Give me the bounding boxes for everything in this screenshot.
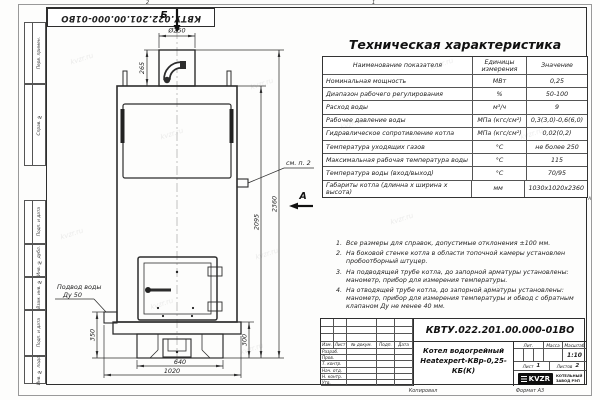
spec-cell-unit: м³/ч	[473, 101, 527, 113]
tb-cell	[321, 327, 334, 335]
tb-doc-number: КВТУ.022.201.00.000-01ВО	[414, 319, 586, 342]
company-name-line1: КОТЕЛЬНЫЙ	[556, 374, 582, 379]
spec-row: Температура уходящих газов °С не более 2…	[323, 140, 587, 153]
tb-sheet-row: Лист 1 Листов 2	[514, 362, 586, 371]
spec-header-row: Наименование показателя Единицы измерени…	[323, 57, 587, 74]
copied-label: Копировал	[393, 388, 453, 394]
tb-cell	[377, 380, 395, 386]
tb-cell	[347, 319, 377, 327]
tb-cell	[395, 319, 413, 327]
spec-cell-unit: °С	[473, 141, 527, 153]
view-b-label: Б	[160, 10, 167, 21]
spec-row: Номинальная мощность МВт 0,25	[323, 74, 587, 87]
spec-cell-name: Диапазон рабочего регулирования	[323, 88, 473, 100]
company-name: КОТЕЛЬНЫЙ ЗАВОД РЭП	[556, 374, 582, 383]
spec-cell-name: Габариты котла (длинна х ширина х высота…	[323, 181, 472, 197]
spec-cell-name: Расход воды	[323, 101, 473, 113]
tb-cell	[395, 327, 413, 335]
tb-scale-value: 1:10	[563, 349, 586, 362]
zone-number-left: 2	[146, 0, 158, 6]
dim-total-height: 2360	[271, 196, 279, 212]
spec-row: Расход воды м³/ч 9	[323, 100, 587, 113]
note-number: 3.	[332, 269, 342, 285]
tb-cell	[524, 349, 534, 362]
tb-product-name-line1: Котел водогрейный	[414, 346, 513, 356]
spec-cell-name: Номинальная мощность	[323, 75, 473, 87]
company-name-line2: ЗАВОД РЭП	[556, 379, 582, 384]
note-text: На подводящей трубе котла, до запорной а…	[346, 269, 584, 285]
spec-row: Гидравлическое сопротивление котла МПа (…	[323, 127, 587, 140]
spec-cell-value: 50-100	[527, 88, 587, 100]
sampling-stub	[237, 179, 248, 187]
spec-row: Температура воды (вход/выход) °С 70/95	[323, 166, 587, 179]
note-text: На отводящей трубе котла, до запорной ар…	[346, 287, 584, 312]
tb-col-podp: Подп.	[377, 342, 395, 349]
dim-base-width: 640	[174, 358, 186, 366]
tb-cell	[544, 349, 563, 362]
logo-text: KVZR	[529, 375, 550, 383]
tb-right-value-row: 1:10	[514, 349, 586, 362]
tb-cell	[514, 349, 524, 362]
tb-cell	[321, 334, 334, 342]
tb-cell	[377, 334, 395, 342]
spec-cell-value: не более 250	[527, 141, 587, 153]
spec-cell-unit: МВт	[473, 75, 527, 87]
tb-sheets-label: Листов	[557, 364, 573, 369]
tb-cell	[334, 319, 347, 327]
kvzr-logo: KVZR	[518, 373, 553, 385]
tb-sheet-value: 1	[536, 363, 540, 369]
tb-scale-label: Масштаб	[563, 342, 586, 349]
door-hinge-bottom	[208, 302, 222, 311]
tb-cell	[347, 380, 377, 386]
tb-logo-row: KVZR КОТЕЛЬНЫЙ ЗАВОД РЭП	[514, 371, 586, 386]
note-number: 4.	[332, 287, 342, 312]
spec-cell-value: 1030х1020х2360	[525, 181, 587, 197]
tb-cell	[334, 327, 347, 335]
dim-chimney-diameter: Ø250	[167, 27, 185, 35]
tb-sheets-cell: Листов 2	[550, 362, 586, 371]
spec-cell-value: 0,3(3,0)-0,6(6,0)	[527, 115, 587, 127]
spec-cell-unit: %	[473, 88, 527, 100]
spec-cell-name: Максимальная рабочая температура воды	[323, 154, 473, 166]
spec-cell-unit: °С	[473, 167, 527, 179]
spec-row: Габариты котла (длинна х ширина х высота…	[323, 180, 587, 197]
tb-lit-label: Лит.	[514, 342, 544, 349]
spec-header-unit: Единицы измерения	[473, 57, 527, 74]
tb-cell	[377, 327, 395, 335]
tb-cell	[347, 327, 377, 335]
see-note-callout: см. п. 2	[286, 159, 311, 167]
zone-number-right: 1	[372, 0, 384, 6]
tb-mass-label: Масса	[544, 342, 563, 349]
notes-list: 1. Все размеры для справок, допустимые о…	[332, 240, 584, 313]
note-item: 2. На боковой стенке котла в области топ…	[332, 250, 584, 266]
title-block: Изм. Лист № докум. Подп. Дата Разраб. Пр…	[320, 318, 585, 385]
tb-cell	[377, 319, 395, 327]
logo-stripes-icon	[521, 375, 527, 382]
spec-cell-unit: °С	[473, 154, 527, 166]
note-item: 3. На подводящей трубе котла, до запорно…	[332, 269, 584, 285]
tb-sheets-value: 2	[575, 363, 579, 369]
tb-cell	[321, 319, 334, 327]
format-label: Формат А3	[500, 388, 560, 394]
spec-table-title: Техническая характеристика	[322, 37, 588, 52]
note-number: 2.	[332, 250, 342, 266]
zone-letter: А	[588, 197, 591, 202]
tb-cell	[395, 334, 413, 342]
tb-col-list: Лист	[334, 342, 347, 349]
spec-cell-value: 70/95	[527, 167, 587, 179]
tb-col-izm: Изм.	[321, 342, 334, 349]
spec-cell-name: Температура воды (вход/выход)	[323, 167, 473, 179]
water-inlet-label-1: Подвод воды	[57, 283, 101, 291]
dim-left-height: 350	[89, 329, 97, 341]
tb-cell	[347, 334, 377, 342]
spec-cell-value: 115	[527, 154, 587, 166]
tb-cell	[395, 380, 413, 386]
note-item: 4. На отводящей трубе котла, до запорной…	[332, 287, 584, 312]
tb-sheet-label: Лист	[523, 364, 534, 369]
title-block-left-grid: Изм. Лист № докум. Подп. Дата Разраб. Пр…	[321, 319, 414, 386]
tb-col-docnum: № докум.	[347, 342, 377, 349]
tb-row-utv: Утв.	[321, 380, 347, 386]
spec-cell-unit: МПа (кгс/см²)	[473, 115, 527, 127]
dim-total-width: 1020	[164, 367, 180, 375]
tb-sheet-cell: Лист 1	[514, 362, 550, 371]
note-item: 1. Все размеры для справок, допустимые о…	[332, 240, 584, 248]
tb-cell	[334, 334, 347, 342]
spec-row: Максимальная рабочая температура воды °С…	[323, 153, 587, 166]
boiler-outline	[104, 50, 248, 358]
spec-table: Наименование показателя Единицы измерени…	[322, 56, 588, 198]
door-hinge-top	[208, 267, 222, 276]
dim-right-height: 300	[241, 334, 249, 346]
spec-cell-value: 9	[527, 101, 587, 113]
view-a-label: А	[298, 191, 306, 202]
tb-cell	[534, 349, 544, 362]
spec-cell-unit: мм	[472, 181, 526, 197]
spec-cell-value: 0,25	[527, 75, 587, 87]
tb-product-name: Котел водогрейный Heatexpert-КВр-0,25-КБ…	[414, 342, 514, 386]
tb-col-data: Дата	[395, 342, 413, 349]
note-number: 1.	[332, 240, 342, 248]
spec-header-value: Значение	[527, 57, 587, 74]
spec-cell-name: Температура уходящих газов	[323, 141, 473, 153]
water-inlet-label-2: Ду 50	[62, 291, 82, 299]
tb-product-name-line2: Heatexpert-КВр-0,25-КБ(К)	[414, 356, 513, 376]
dim-chimney-height: 265	[138, 62, 146, 74]
note-text: На боковой стенке котла в области топочн…	[346, 250, 584, 266]
dim-body-height: 2095	[253, 214, 261, 230]
tb-right-header-row: Лит. Масса Масштаб	[514, 342, 586, 349]
spec-row: Диапазон рабочего регулирования % 50-100	[323, 87, 587, 100]
chimney-elbow	[164, 61, 186, 83]
note-text: Все размеры для справок, допустимые откл…	[346, 240, 550, 248]
